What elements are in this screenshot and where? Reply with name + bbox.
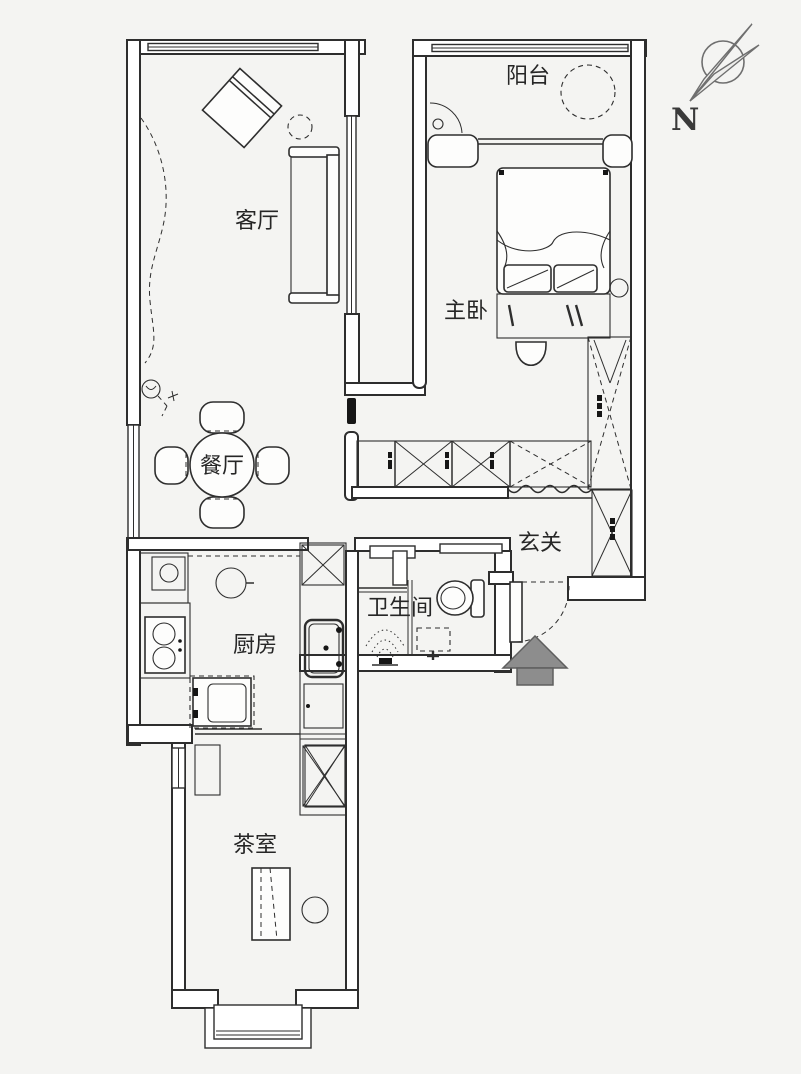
chair-icon [516,342,546,365]
cabinet-icon [302,545,344,585]
living-room: 客厅 [141,68,339,363]
bay-window [205,1005,311,1048]
shower-partition [393,551,407,585]
shoe-cabinet-icon [592,490,632,576]
kitchen: 厨房 [140,553,300,728]
wall-switch-panel [347,398,356,424]
compass-needle-icon [690,24,759,101]
master-bedroom-label: 主卧 [444,299,488,324]
bed-bench-icon [497,294,610,338]
entry-arrow-icon [503,636,567,685]
compass-north-label: N [671,102,699,138]
wardrobe-icon [357,441,591,487]
door-hinge-icon [433,119,443,129]
door-leaf-icon [510,582,522,642]
bathroom-label: 卫生间 [367,596,433,621]
living-label: 客厅 [235,209,279,234]
entry-label: 玄关 [518,531,562,556]
kitchen-label: 厨房 [233,633,277,658]
dining-area: 餐厅 [142,380,289,528]
tea-room-label: 茶室 [233,833,277,858]
stool-icon [302,897,328,923]
dining-label: 餐厅 [200,454,244,479]
ceiling-lamp-icon [142,380,178,416]
curtain-icon [141,118,166,363]
floor-plan-drawing: 阳台 客厅 主卧 [0,0,801,1074]
shelf-icon [440,544,502,553]
balcony: 阳台 [428,64,632,167]
balcony-label: 阳台 [506,64,550,89]
compass: N [671,24,759,138]
side-table-icon [288,115,312,139]
fridge-icon [190,676,254,728]
tea-table-icon [252,868,290,940]
bathroom: 卫生间 [358,544,502,665]
bed-icon [497,168,610,338]
bedside-lamp-icon [610,279,628,297]
wardrobe-icon [588,337,631,489]
hallway-wardrobes [357,441,591,487]
door-swing-icon [516,586,569,642]
entry-door [510,582,569,642]
floor-plan: 阳台 客厅 主卧 [0,0,801,1074]
sofa-icon [289,147,339,303]
round-table-icon [561,65,615,119]
stove-icon [145,617,185,673]
cabinet-icon [305,745,345,807]
utility-column [300,543,346,815]
radiator-icon [428,135,478,167]
toilet-icon [437,580,484,617]
cabinet-icon [195,745,220,795]
sink-icon [216,568,246,598]
radiator-icon [603,135,632,167]
armchair-icon [202,68,281,147]
sink-icon [160,564,178,582]
